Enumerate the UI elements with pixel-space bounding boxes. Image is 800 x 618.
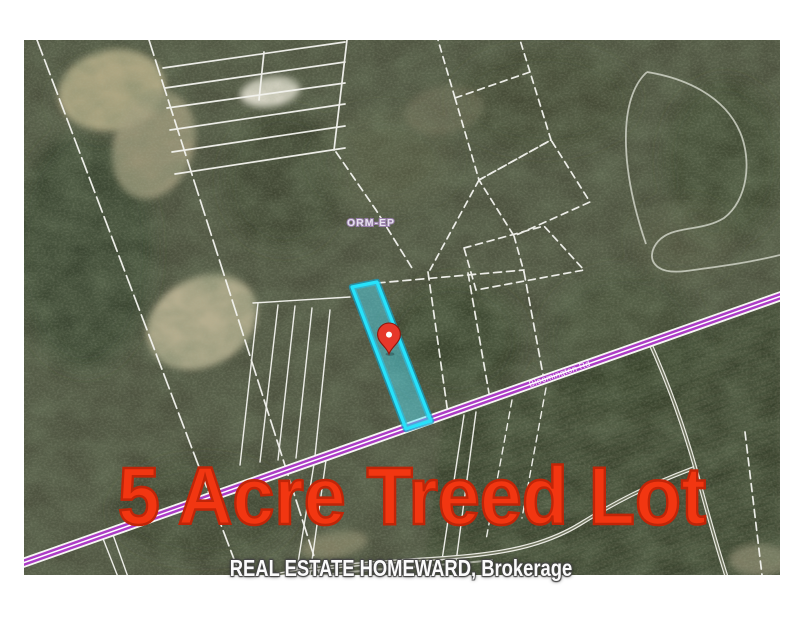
aerial-map-svg: Bloomington Rd ORM-EP [24, 40, 780, 575]
forest-texture [24, 40, 780, 575]
aerial-parcel-map: Bloomington Rd ORM-EP [24, 40, 780, 575]
listing-photo: Bloomington Rd ORM-EP 5 Acre Treed Lot R… [0, 0, 800, 618]
zoning-label: ORM-EP [347, 217, 395, 229]
